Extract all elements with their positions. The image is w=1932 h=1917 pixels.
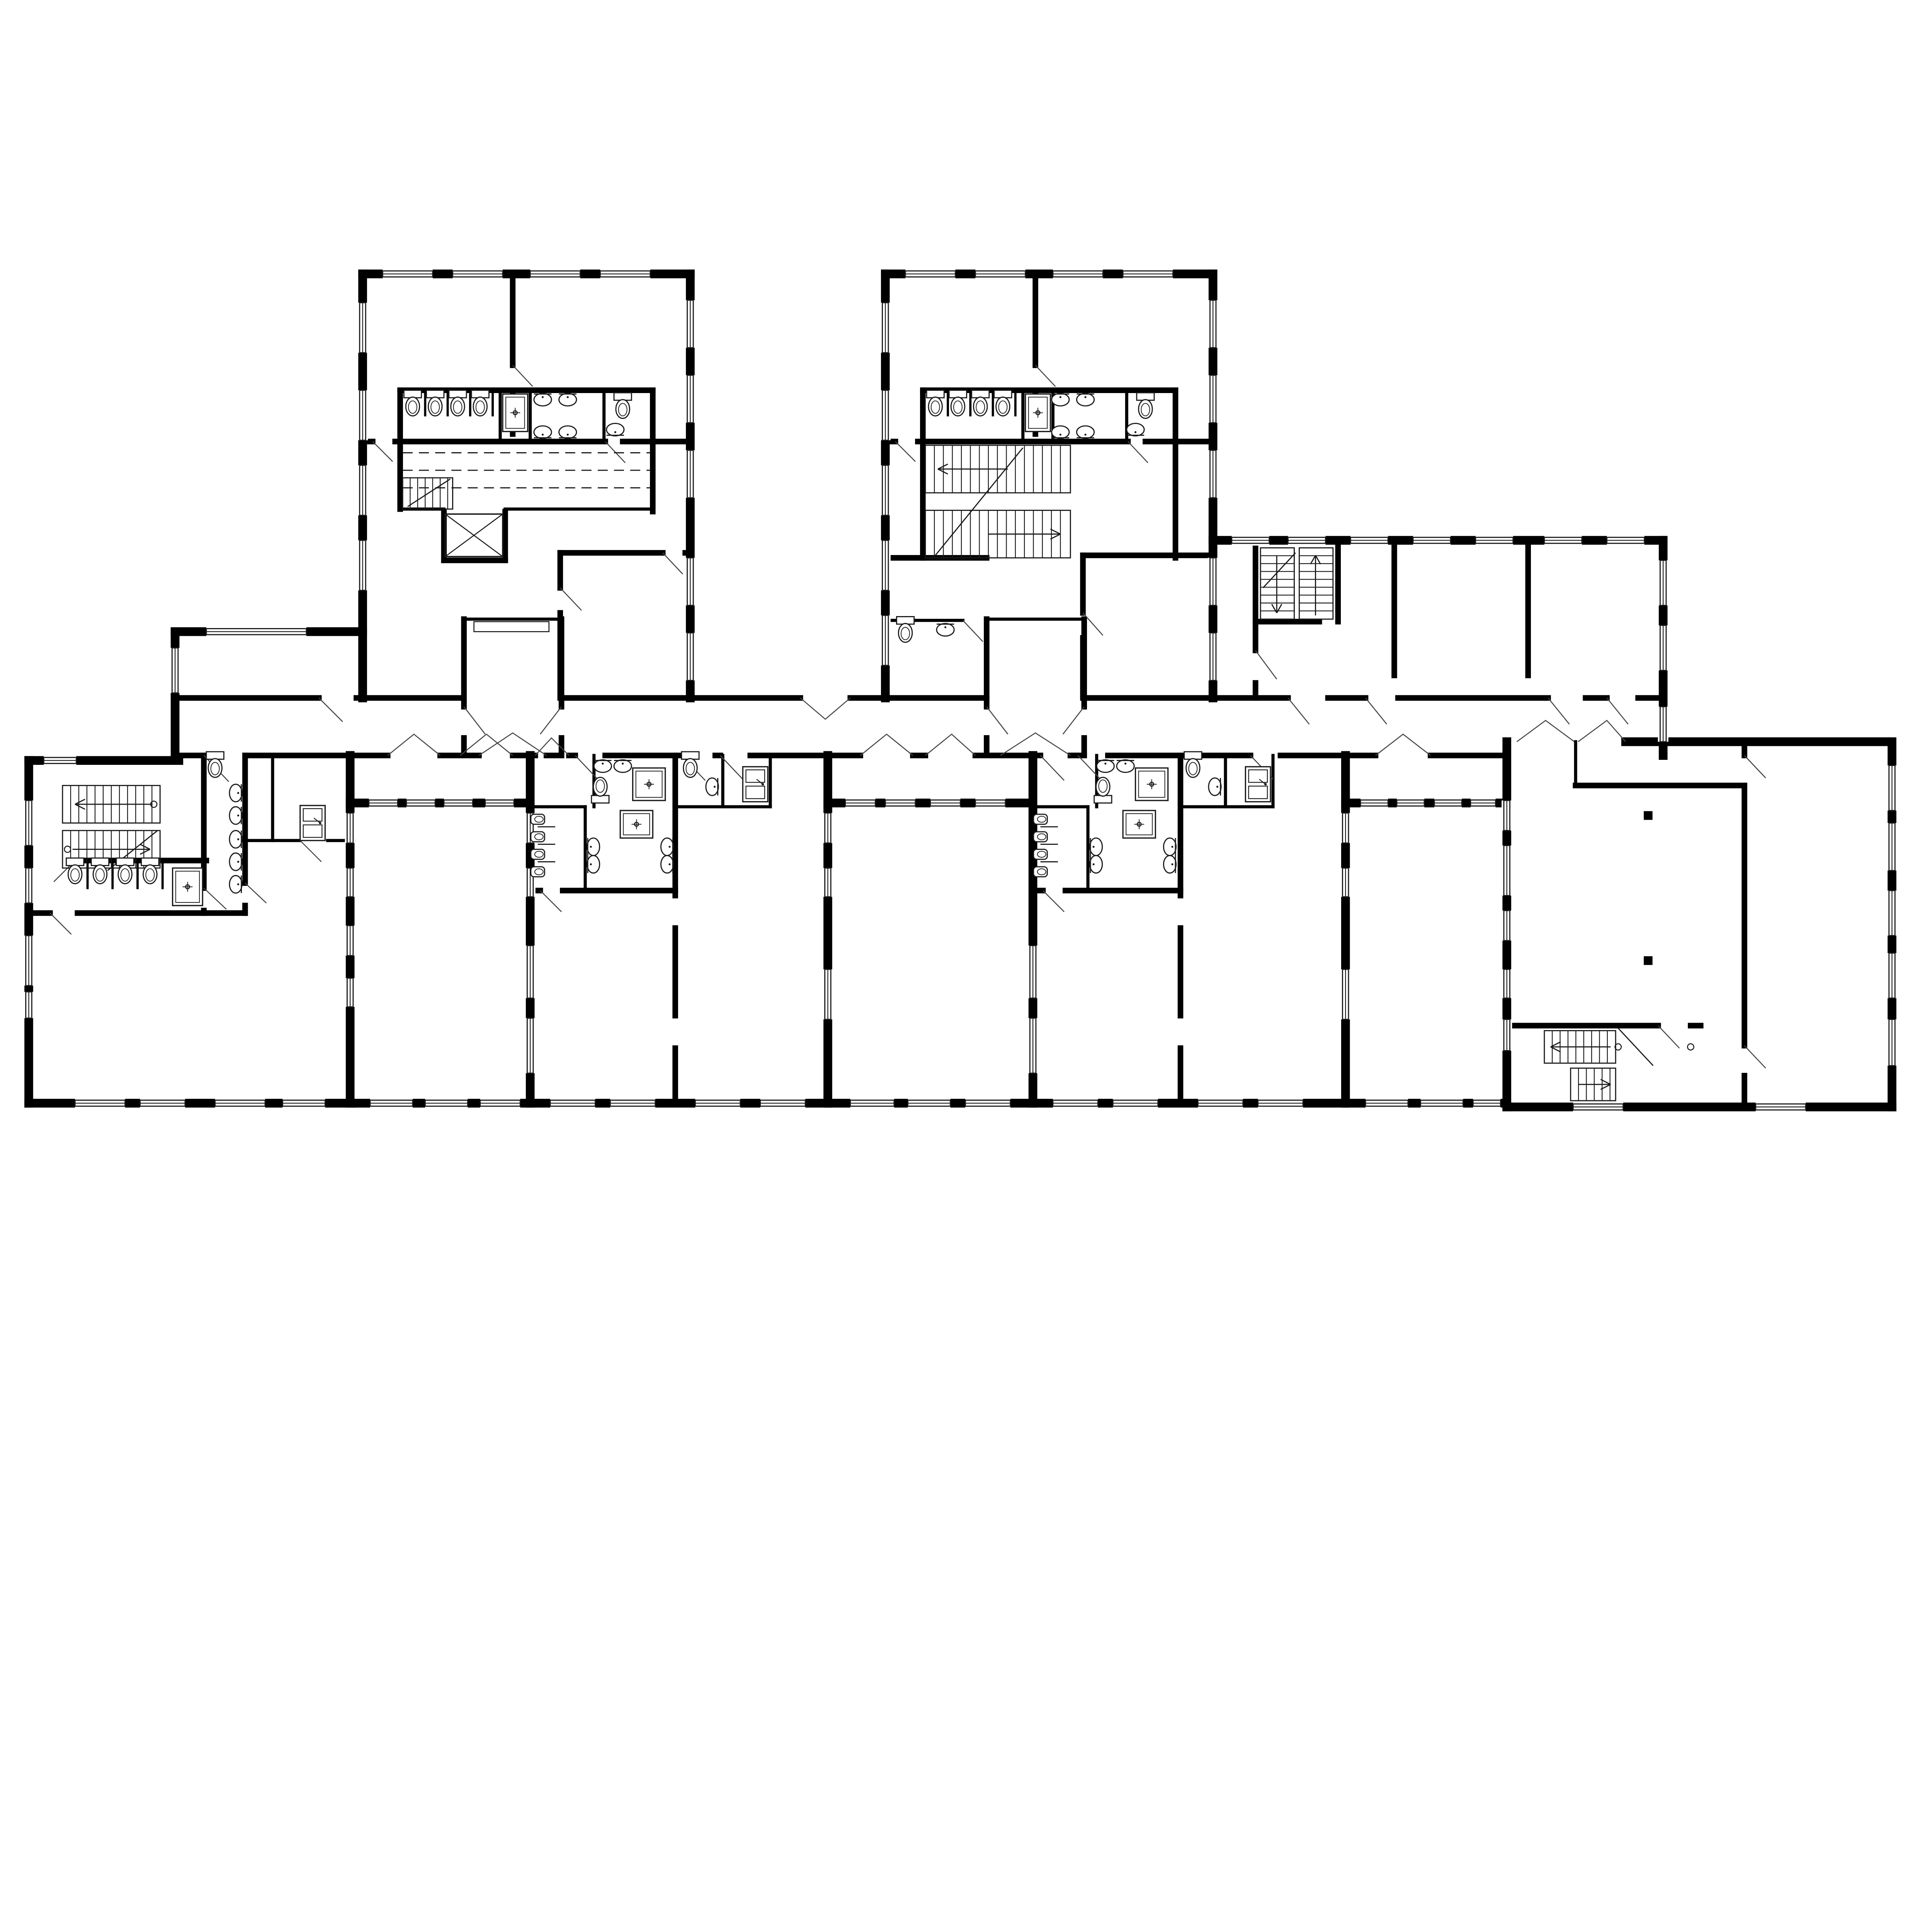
wall-segment (1325, 695, 1369, 701)
kitchen-sink-icon (743, 767, 768, 802)
wall-segment (1080, 553, 1216, 558)
wall-segment (441, 509, 447, 563)
plan-background (0, 0, 1932, 1367)
ellipse (559, 426, 577, 438)
ellipse (661, 838, 673, 855)
sink-icon (230, 853, 242, 870)
wall-segment (1086, 805, 1089, 892)
rect (1034, 814, 1048, 824)
rect (531, 849, 545, 859)
wall-segment (172, 695, 322, 701)
wall-segment (498, 389, 502, 443)
circle (542, 434, 544, 436)
wall-segment (602, 389, 605, 443)
circle (1171, 863, 1173, 865)
ellipse (614, 760, 631, 772)
floor-plan-page (0, 0, 1932, 1367)
wall-segment (558, 550, 563, 591)
wall-segment (503, 507, 654, 511)
wall-segment (1014, 389, 1017, 417)
circle (237, 814, 239, 816)
ellipse (706, 778, 718, 795)
wall-segment (75, 910, 248, 916)
circle (668, 846, 670, 848)
ellipse (534, 426, 551, 438)
ellipse (594, 760, 611, 772)
rect (1034, 832, 1048, 842)
urinal-icon (1034, 832, 1048, 842)
urinal-icon (531, 814, 545, 824)
sink-icon (1117, 760, 1134, 772)
wall-segment (1635, 695, 1666, 701)
circle (1104, 763, 1106, 764)
urinal-icon (531, 832, 545, 842)
wall-segment (558, 550, 666, 556)
kitchen-sink-icon (300, 805, 325, 841)
ellipse (230, 807, 242, 824)
sink-icon (559, 426, 577, 438)
wall-segment (1082, 616, 1087, 710)
wall-segment (1031, 805, 1089, 808)
circle (714, 786, 716, 788)
wall-segment (1173, 387, 1179, 560)
toilet-icon (896, 616, 914, 642)
sink-icon (230, 831, 242, 848)
wall-segment (566, 752, 578, 758)
wall-segment (584, 805, 587, 892)
wall-segment (510, 271, 516, 368)
circle (567, 396, 569, 398)
shower-icon (620, 810, 653, 838)
wall-segment (1335, 538, 1341, 625)
toilet-icon (927, 390, 944, 416)
urinal-icon (531, 867, 545, 877)
toilet-icon (206, 752, 224, 777)
wall-segment (1178, 752, 1184, 898)
circle (614, 431, 616, 433)
circle (1171, 846, 1173, 848)
wall-segment (747, 752, 863, 758)
wall-segment (354, 695, 366, 701)
sink-icon (607, 423, 624, 436)
wall-segment (1178, 925, 1184, 1018)
toilet-icon (972, 390, 989, 416)
wall-segment (672, 925, 678, 1018)
ellipse (1209, 778, 1221, 795)
sink-icon (587, 856, 599, 873)
rect (1034, 867, 1048, 877)
wall-segment (1525, 538, 1531, 678)
wall-segment (672, 752, 678, 898)
sink-icon (1163, 856, 1176, 873)
toilet-icon (1137, 393, 1154, 418)
circle (590, 846, 592, 848)
circle (1084, 396, 1086, 398)
wall-segment (682, 550, 693, 556)
circle (1084, 434, 1086, 436)
ellipse (587, 856, 599, 873)
wall-segment (602, 752, 684, 758)
sink-icon (1209, 778, 1221, 795)
circle (1134, 431, 1136, 433)
wall-segment (1179, 805, 1275, 808)
toilet-icon (682, 752, 699, 777)
circle (542, 396, 544, 398)
toilet-icon (994, 390, 1012, 416)
ellipse (1090, 856, 1102, 873)
wall-segment (111, 860, 114, 889)
ellipse (1117, 760, 1134, 772)
wall-segment (162, 860, 164, 889)
wall-segment (26, 910, 53, 916)
wall-segment (674, 805, 772, 808)
shower-icon (633, 768, 665, 800)
wall-segment (1742, 739, 1747, 758)
ellipse (230, 784, 242, 802)
wall-segment (884, 619, 964, 622)
sink-icon (534, 393, 551, 406)
sink-icon (230, 784, 242, 802)
wall-segment (461, 616, 467, 710)
circle (1216, 786, 1218, 788)
ellipse (587, 838, 599, 855)
wall-segment (1688, 1023, 1703, 1028)
circle (1093, 863, 1095, 865)
sink-icon (1052, 426, 1069, 438)
sink-icon (534, 426, 551, 438)
column (1644, 956, 1653, 965)
wall-segment (1742, 1073, 1747, 1110)
ellipse (1052, 426, 1069, 438)
ellipse (937, 623, 954, 636)
wall-segment (620, 439, 693, 444)
wall-segment (1063, 888, 1183, 894)
wall-segment (136, 860, 139, 889)
wall-segment (201, 908, 207, 916)
wall-segment (687, 695, 803, 701)
rect (531, 867, 545, 877)
urinal-icon (1034, 849, 1048, 859)
circle (1060, 396, 1061, 398)
rect (1034, 849, 1048, 859)
wall-segment (242, 752, 390, 758)
toilet-icon (66, 858, 84, 884)
wall-segment (1253, 680, 1259, 701)
wall-segment (360, 695, 467, 701)
toilet-icon (141, 858, 159, 884)
circle (237, 861, 239, 863)
sink-icon (661, 856, 673, 873)
wall-segment (769, 754, 772, 809)
wall-segment (1021, 389, 1024, 443)
wall-segment (1080, 553, 1086, 616)
wall-segment (461, 752, 481, 758)
wall-segment (1512, 1023, 1661, 1028)
toilet-icon (949, 390, 966, 416)
wall-segment (242, 752, 248, 886)
circle (1093, 846, 1095, 848)
wall-segment (1502, 1103, 1896, 1112)
toilet-icon (91, 858, 109, 884)
ellipse (1077, 393, 1094, 406)
ellipse (1163, 856, 1176, 873)
sink-icon (614, 760, 631, 772)
wall-segment (559, 616, 565, 710)
wall-segment (1143, 439, 1216, 444)
shower-icon (1026, 394, 1051, 431)
wall-segment (302, 627, 367, 636)
wall-segment (529, 389, 532, 443)
toilet-icon (404, 390, 421, 416)
wall-segment (650, 387, 656, 514)
wall-segment (437, 752, 463, 758)
circle (1124, 763, 1126, 764)
sink-icon (230, 807, 242, 824)
sink-icon (937, 623, 954, 636)
toilet-icon (449, 390, 466, 416)
wall-segment (271, 754, 274, 842)
ellipse (607, 423, 624, 436)
toilet-icon (471, 390, 489, 416)
ellipse (1090, 838, 1102, 855)
circle (567, 434, 569, 436)
sink-icon (559, 393, 577, 406)
ellipse (230, 831, 242, 848)
ellipse (230, 853, 242, 870)
circle (237, 792, 239, 794)
toilet-icon (1094, 777, 1112, 803)
urinal-icon (1034, 867, 1048, 877)
circle (602, 763, 604, 764)
urinal-icon (531, 849, 545, 859)
ellipse (1127, 423, 1144, 436)
sink-icon (587, 838, 599, 855)
kitchen-sink-icon (1245, 767, 1270, 802)
shower-icon (173, 868, 203, 906)
wall-segment (883, 695, 990, 701)
circle (622, 763, 624, 764)
wall-segment (1178, 1045, 1184, 1106)
shower-icon (503, 394, 528, 431)
shower-icon (1136, 768, 1168, 800)
wall-segment (920, 387, 926, 444)
wall-segment (1742, 783, 1747, 1049)
circle (237, 838, 239, 840)
wall-segment (1278, 752, 1379, 758)
wall-segment (463, 618, 563, 621)
ellipse (1052, 393, 1069, 406)
wall-segment (672, 1045, 678, 1106)
ellipse (1097, 760, 1114, 772)
sink-icon (661, 838, 673, 855)
wall-segment (721, 754, 724, 809)
wall-segment (1253, 538, 1259, 653)
circle (944, 626, 946, 628)
wall-segment (1210, 695, 1291, 701)
sink-icon (1127, 423, 1144, 436)
floor-plan-canvas (0, 0, 1932, 1367)
column (1644, 811, 1653, 820)
ellipse (661, 856, 673, 873)
ellipse (534, 393, 551, 406)
wall-segment (985, 618, 1086, 621)
wall-segment (1574, 740, 1577, 787)
wall-segment (1032, 271, 1038, 368)
rect (531, 832, 545, 842)
toilet-icon (1184, 752, 1202, 777)
ellipse (230, 875, 242, 893)
circle (237, 883, 239, 885)
wall-segment (1395, 695, 1551, 701)
ellipse (1077, 426, 1094, 438)
wall-segment (560, 888, 678, 894)
toilet-icon (592, 777, 609, 803)
sink-icon (1077, 393, 1094, 406)
ellipse (559, 393, 577, 406)
wall-segment (559, 695, 693, 701)
wall-segment (529, 805, 587, 808)
sink-icon (1052, 393, 1069, 406)
wall-segment (1082, 695, 1216, 701)
sink-icon (230, 875, 242, 893)
sink-icon (1090, 856, 1102, 873)
toilet-icon (427, 390, 444, 416)
wall-segment (1391, 538, 1397, 678)
wall-segment (1271, 754, 1274, 809)
wall-segment (441, 558, 508, 564)
ellipse (1163, 838, 1176, 855)
wall-segment (1573, 783, 1747, 788)
wall-segment (492, 389, 494, 417)
wall-segment (544, 752, 564, 758)
wall-segment (243, 839, 301, 842)
rect (531, 814, 545, 824)
sink-icon (706, 778, 718, 795)
wall-segment (1428, 752, 1510, 758)
toilet-icon (614, 393, 631, 418)
wall-segment (984, 616, 990, 710)
shower-icon (1123, 810, 1155, 838)
sink-icon (1097, 760, 1114, 772)
wall-segment (847, 695, 888, 701)
sink-icon (594, 760, 611, 772)
circle (590, 863, 592, 865)
wall-segment (397, 387, 403, 444)
toilet-icon (116, 858, 134, 884)
sink-icon (1090, 838, 1102, 855)
wall-segment (242, 903, 248, 916)
wall-segment (171, 691, 180, 760)
wall-segment (1224, 754, 1227, 809)
wall-segment (1583, 695, 1610, 701)
circle (1060, 434, 1061, 436)
circle (668, 863, 670, 865)
sink-icon (1077, 426, 1094, 438)
urinal-icon (1034, 814, 1048, 824)
sink-icon (1163, 838, 1176, 855)
